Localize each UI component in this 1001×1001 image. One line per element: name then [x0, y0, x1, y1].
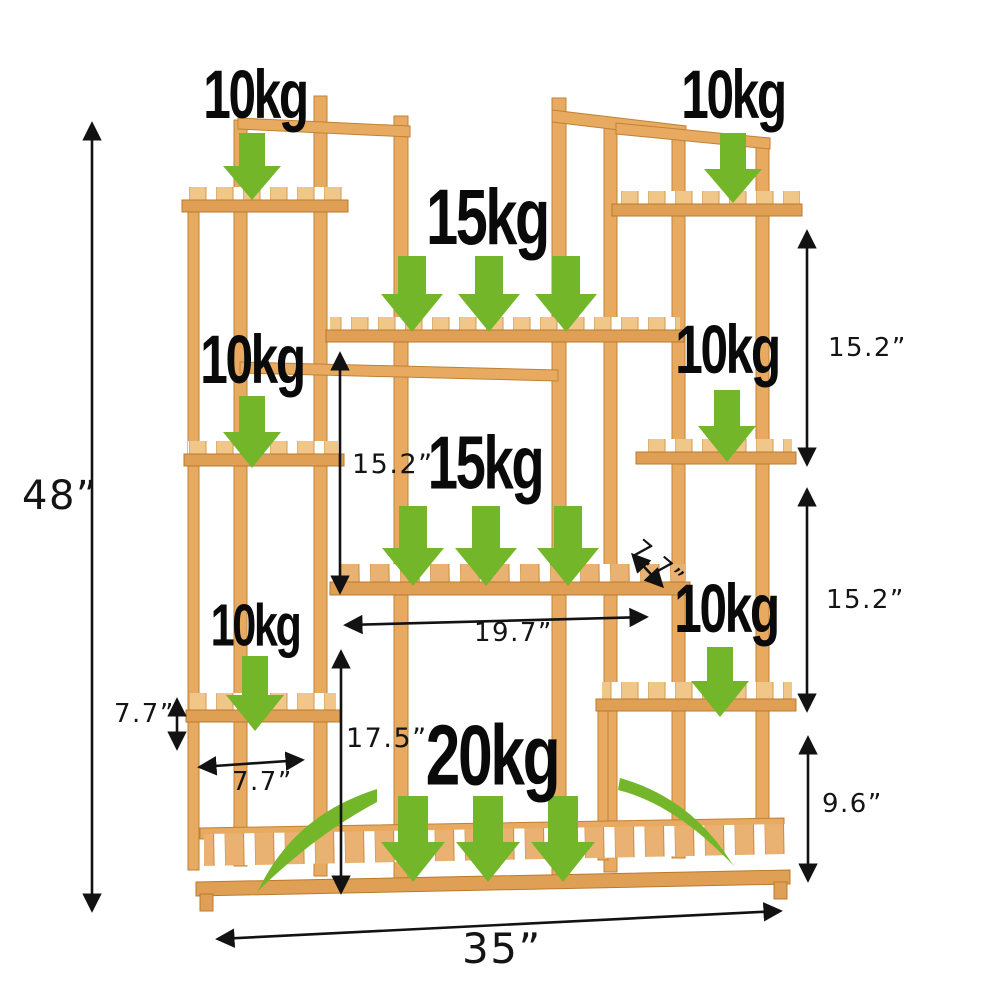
- post: [672, 132, 685, 858]
- post: [234, 120, 247, 866]
- weight-label-middle-right: 10kg: [675, 317, 778, 385]
- plant-stand-dimension-diagram: 10kg 10kg 15kg 10kg 10kg 15kg 10kg 10kg …: [0, 0, 1001, 1001]
- shelf-top-left: [182, 187, 348, 212]
- shelf-top-right: [612, 191, 802, 216]
- weight-label-middle-left: 10kg: [200, 327, 303, 395]
- shelf-upper-center: [326, 317, 684, 342]
- weight-label-top-left: 10kg: [203, 62, 306, 130]
- dimension-label-center-bottom-tier: 17.5”: [346, 725, 428, 752]
- weight-label-center: 15kg: [428, 426, 542, 501]
- post: [756, 140, 769, 852]
- weight-label-lower-right: 10kg: [674, 576, 777, 644]
- dimension-label-small-shelf-width: 7.7”: [232, 769, 293, 795]
- small-shelf-width-arrow: [200, 760, 302, 767]
- post: [394, 116, 408, 878]
- weight-label-lower-left: 10kg: [211, 596, 300, 655]
- dimension-label-right-upper-tier: 15.2”: [828, 335, 907, 361]
- dimension-label-overall-height: 48”: [22, 476, 98, 516]
- weight-label-upper-center: 15kg: [426, 178, 548, 257]
- post: [314, 96, 327, 876]
- shelf-center: [330, 564, 690, 595]
- dimension-label-middle-shelf-length: 19.7”: [474, 620, 553, 646]
- dimension-label-overall-width: 35”: [462, 928, 542, 970]
- dimension-label-right-lower-tier: 15.2”: [826, 587, 905, 613]
- weight-label-top-right: 10kg: [681, 62, 784, 130]
- weight-label-bottom-center: 20kg: [426, 712, 559, 798]
- dimension-label-small-shelf-height: 7.7”: [114, 701, 175, 727]
- post: [188, 206, 199, 870]
- dimension-label-right-bottom-tier: 9.6”: [822, 791, 883, 817]
- dimension-label-center-tier: 15.2”: [352, 451, 434, 478]
